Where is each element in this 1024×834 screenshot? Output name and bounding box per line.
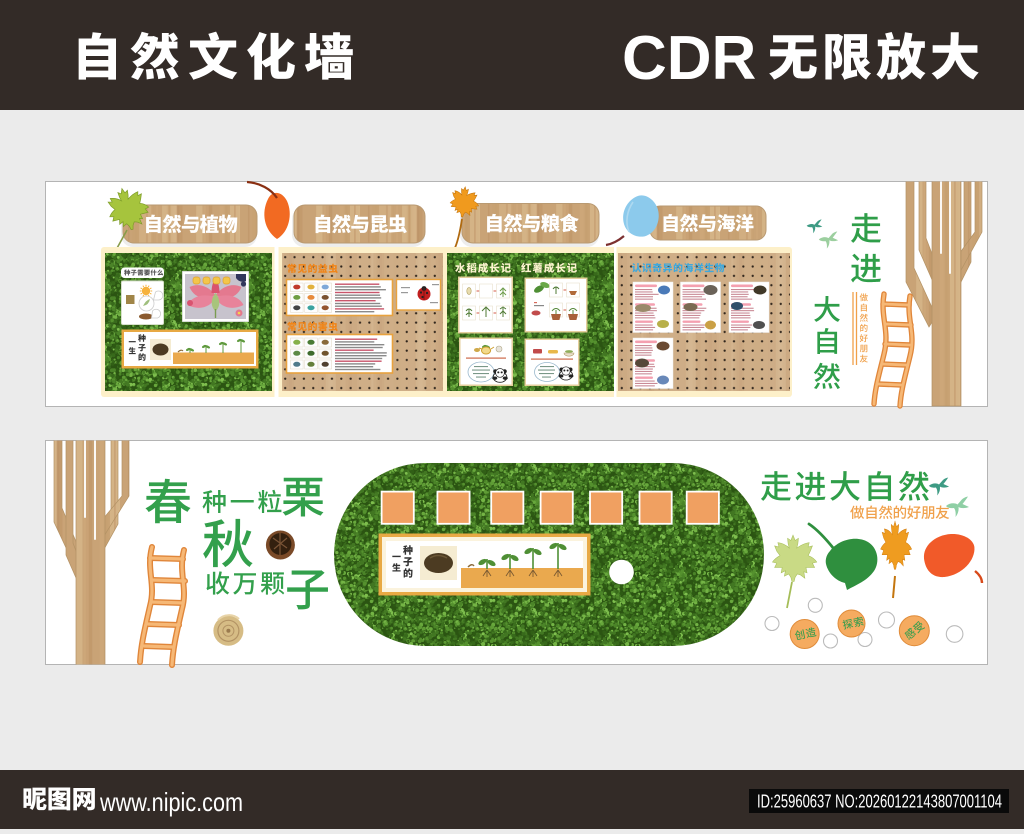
svg-text:ID:25960637 NO:202601221438070: ID:25960637 NO:20260122143807001104: [757, 792, 1002, 812]
svg-text:www.nipic.com: www.nipic.com: [99, 787, 243, 817]
svg-text:CDR: CDR: [622, 24, 756, 93]
